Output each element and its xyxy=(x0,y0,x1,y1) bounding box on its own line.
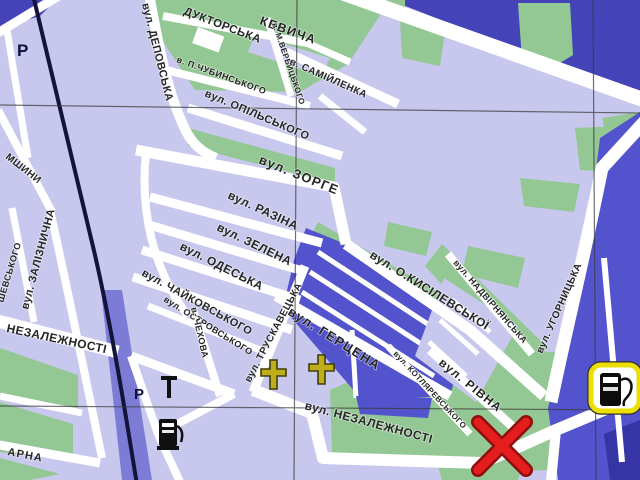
fuel-station-badge xyxy=(588,362,640,414)
parking-icon: Р xyxy=(17,41,28,60)
map-svg: КЕВИЧА ДУКТОРСЬКА вул. ДЕПОВСЬКА в. П.ЧУ… xyxy=(0,0,640,480)
map-canvas[interactable]: КЕВИЧА ДУКТОРСЬКА вул. ДЕПОВСЬКА в. П.ЧУ… xyxy=(0,0,640,480)
parking-icon: Р xyxy=(134,386,144,403)
road-fork-south xyxy=(551,430,556,480)
